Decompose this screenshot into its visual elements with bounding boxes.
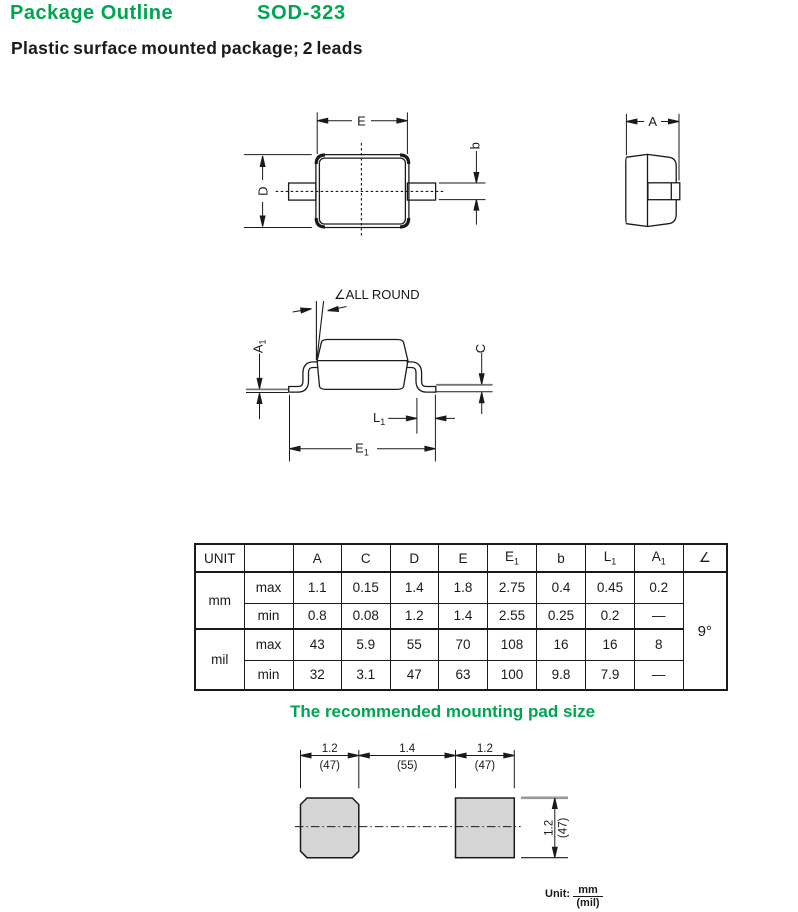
svg-text:1.4: 1.4 [399, 743, 416, 755]
svg-text:1.2: 1.2 [322, 743, 338, 755]
svg-text:A1: A1 [250, 339, 267, 353]
svg-text:D: D [255, 187, 270, 196]
svg-text:C: C [473, 344, 488, 353]
svg-text:E: E [357, 114, 366, 129]
svg-text:(55): (55) [397, 760, 418, 772]
svg-text:L1: L1 [373, 410, 385, 427]
svg-text:b: b [468, 142, 483, 149]
svg-text:E1: E1 [355, 441, 369, 458]
svg-text:(47): (47) [475, 760, 496, 772]
svg-text:(47): (47) [558, 818, 570, 839]
svg-text:1.2: 1.2 [477, 743, 493, 755]
svg-text:1.2: 1.2 [544, 820, 556, 836]
svg-text:A: A [648, 114, 657, 129]
svg-text:∠ALL ROUND: ∠ALL ROUND [334, 287, 420, 302]
svg-text:(47): (47) [319, 760, 340, 772]
